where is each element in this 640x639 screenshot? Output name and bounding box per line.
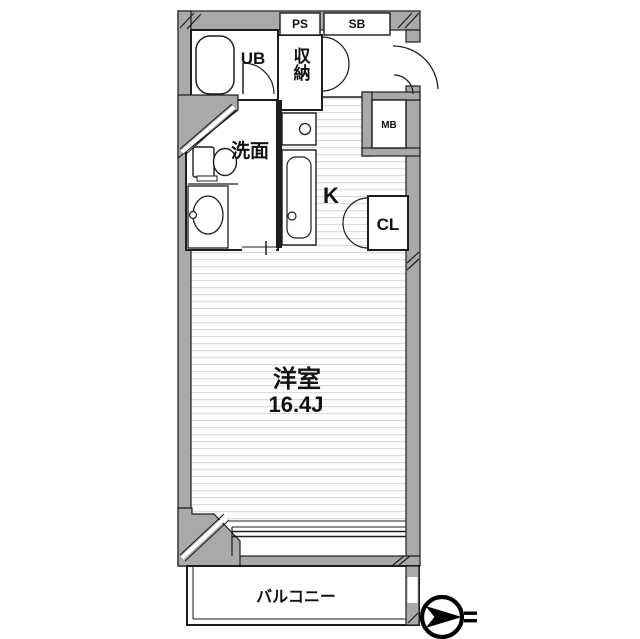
vanity-tap — [190, 212, 197, 219]
bathtub — [196, 36, 234, 94]
appliance-faucet — [300, 124, 311, 135]
toilet-tank — [193, 147, 214, 177]
toilet-base — [197, 176, 217, 181]
label-shoe-box: SB — [349, 17, 366, 31]
label-pipe-space: PS — [292, 17, 308, 31]
floor-plan: UB 収納 PS SB MB 洗面 — [0, 0, 640, 639]
label-washroom: 洗面 — [231, 139, 269, 162]
kitchen-fixtures — [282, 113, 316, 245]
meter-box-wall-left — [362, 92, 372, 156]
outer-wall-left — [178, 11, 191, 566]
label-main-room-size: 16.4J — [268, 392, 323, 417]
label-balcony: バルコニー — [256, 588, 336, 606]
kitchen-tap — [288, 212, 296, 220]
label-closet: CL — [377, 215, 400, 234]
label-meter-box: MB — [381, 120, 397, 131]
washroom-kitchen-wall — [276, 100, 282, 248]
vanity-basin — [193, 196, 223, 234]
balcony: バルコニー — [187, 566, 419, 625]
label-storage: 収納 — [291, 47, 311, 82]
label-kitchen: K — [323, 183, 339, 208]
label-unit-bath: UB — [241, 49, 266, 68]
label-main-room: 洋室 — [273, 365, 321, 393]
floor-plan-page: UB 収納 PS SB MB 洗面 — [0, 0, 640, 639]
outer-wall-right — [406, 100, 420, 556]
compass-equals-bottom — [464, 619, 477, 622]
entry-wall-stub — [406, 30, 420, 42]
balcony-wall-gap — [408, 577, 418, 603]
room-unit-bath: UB — [191, 30, 278, 100]
meter-box-wall-bottom — [362, 148, 420, 156]
kitchen-sink — [287, 157, 311, 238]
compass-equals-top — [464, 612, 477, 615]
